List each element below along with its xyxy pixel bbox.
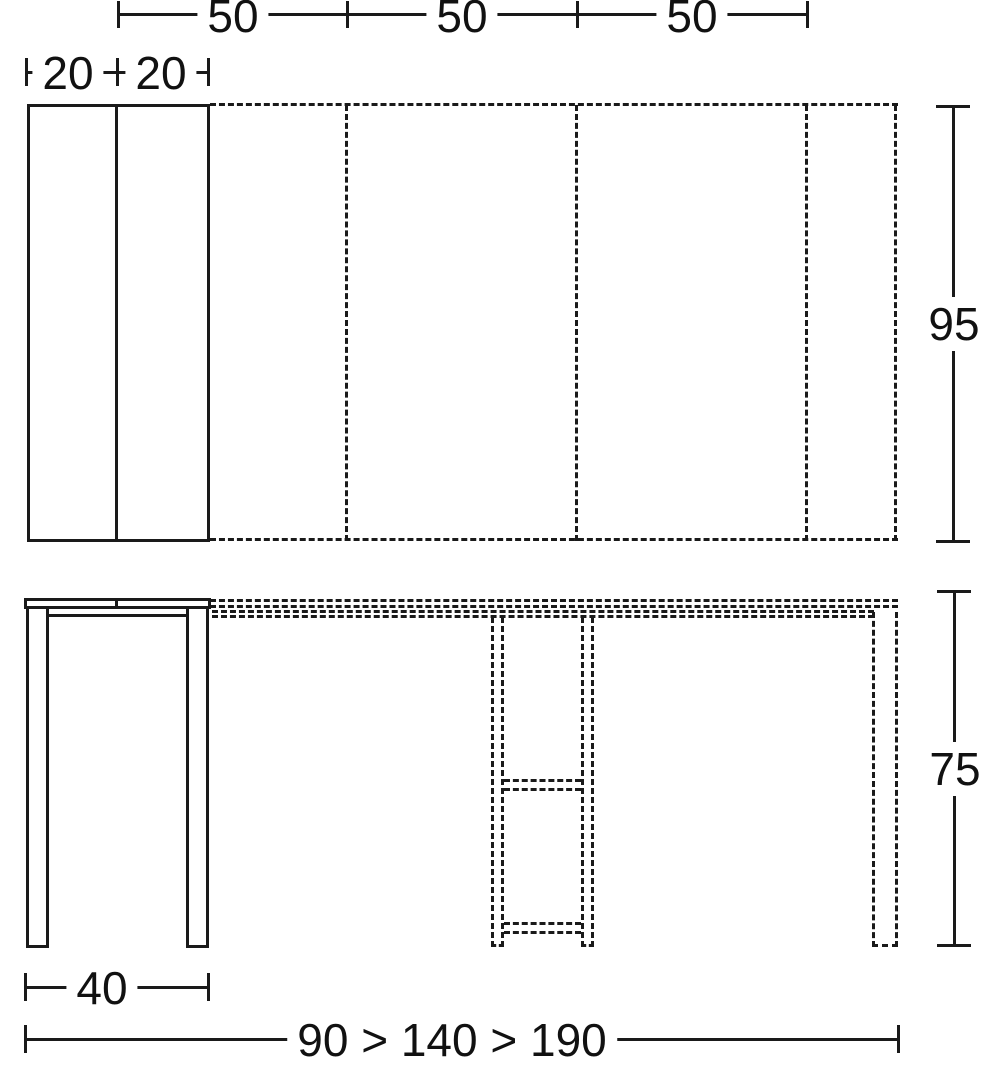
dim-label-extension-2: 50	[426, 0, 497, 43]
dim-tick	[116, 58, 119, 86]
folding-leg-right-outer-dashed	[591, 617, 594, 947]
tabletop-side-leaf-split	[115, 598, 118, 609]
extension-outline-top-dashed	[210, 103, 898, 106]
end-leg-left-dashed	[872, 612, 875, 947]
dim-tick	[24, 973, 27, 1001]
dim-tick	[117, 1, 120, 28]
tabletop-closed-outline	[27, 104, 210, 542]
folding-leg-crossbar-dashed-3	[504, 922, 581, 925]
dim-tick	[936, 540, 970, 543]
left-leg	[26, 606, 49, 948]
tabletop-leaf-divider	[115, 104, 118, 542]
dim-label-height: 75	[919, 742, 990, 796]
dim-tick	[936, 105, 970, 108]
dim-tick	[24, 1025, 27, 1053]
dim-label-extension-1: 50	[197, 0, 268, 43]
dim-tick	[937, 944, 971, 947]
dim-tick	[207, 58, 210, 86]
folding-leg-left-foot-dashed	[491, 944, 504, 947]
folding-leg-left-inner-dashed	[501, 617, 504, 947]
extended-top-layer-dashed-4	[212, 615, 874, 618]
extended-top-layer-dashed-1	[210, 599, 898, 602]
extension-divider-dashed-1	[345, 105, 348, 541]
dim-label-leaf-2: 20	[125, 46, 196, 100]
extension-divider-dashed-3	[805, 105, 808, 541]
dim-label-leaf-1: 20	[32, 46, 103, 100]
dim-tick	[897, 1025, 900, 1053]
folding-leg-crossbar-dashed-1	[504, 779, 581, 782]
apron-line	[48, 614, 186, 617]
folding-leg-crossbar-dashed-4	[504, 931, 581, 934]
extension-outline-right-dashed	[894, 105, 897, 541]
dim-tick	[806, 1, 809, 28]
extension-divider-dashed-2	[575, 105, 578, 541]
dim-tick	[25, 58, 28, 86]
dim-label-base: 40	[66, 961, 137, 1015]
extended-top-layer-dashed-2	[210, 605, 898, 608]
end-leg-right-dashed	[895, 612, 898, 947]
dim-label-depth: 95	[918, 297, 989, 351]
folding-leg-left-outer-dashed	[491, 617, 494, 947]
folding-leg-crossbar-dashed-2	[504, 788, 581, 791]
dimension-drawing: 50 50 50 20 20 95 75	[0, 0, 1000, 1070]
extension-outline-bottom-dashed	[210, 538, 898, 541]
end-leg-foot-dashed	[872, 944, 898, 947]
dim-tick	[576, 1, 579, 28]
dim-tick	[937, 590, 971, 593]
extended-top-layer-dashed-3	[212, 610, 874, 613]
dim-tick	[346, 1, 349, 28]
folding-leg-right-foot-dashed	[581, 944, 594, 947]
dim-tick	[207, 973, 210, 1001]
right-leg	[186, 606, 209, 948]
folding-leg-right-inner-dashed	[581, 617, 584, 947]
dim-label-length: 90 > 140 > 190	[287, 1013, 617, 1067]
dim-label-extension-3: 50	[656, 0, 727, 43]
